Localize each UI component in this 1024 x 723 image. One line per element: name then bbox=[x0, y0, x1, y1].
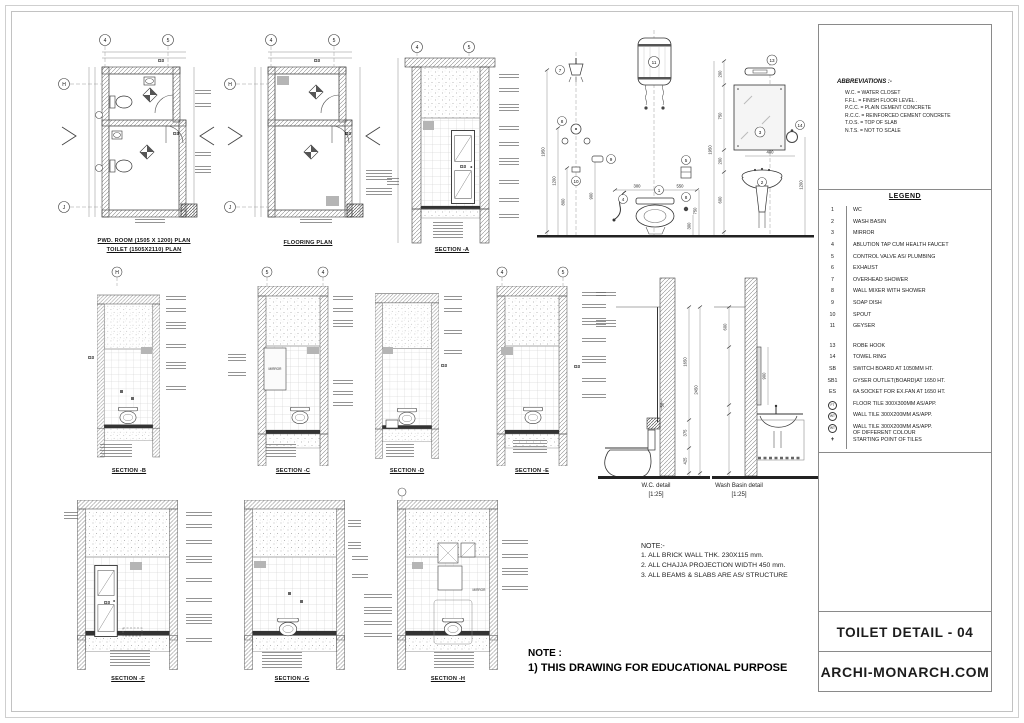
legend-item: +STARTING POINT OF TILES bbox=[819, 436, 991, 448]
caption-section-d: SECTION -D bbox=[390, 468, 424, 474]
grid-bubble-5: 5 bbox=[333, 38, 336, 44]
grid-bubble-h: H bbox=[62, 82, 66, 88]
legend-label: SPOUT bbox=[846, 310, 871, 317]
abbreviation-item: T.O.S. = TOP OF SLAB bbox=[845, 120, 951, 128]
abbreviation-item: P.C.C. = PLAIN CEMENT CONCRETE bbox=[845, 105, 951, 113]
annotation-note bbox=[135, 219, 165, 225]
wash-basin-detail: 900 600 bbox=[712, 278, 820, 479]
annotation-note bbox=[499, 158, 519, 167]
annotation-note bbox=[582, 338, 606, 344]
caption-section-a: SECTION -A bbox=[435, 247, 469, 253]
annotation-note bbox=[166, 296, 186, 302]
wc-detail: 1650 2450 375 425 50 bbox=[598, 278, 710, 479]
legend-item: 11GEYSER bbox=[819, 322, 991, 334]
legend-label: 6A SOCKET FOR EX.FAN AT 1650 HT. bbox=[846, 388, 945, 395]
annotation-note bbox=[499, 180, 519, 186]
dim-label: 200 bbox=[718, 70, 723, 78]
legend-key: 4 bbox=[819, 241, 846, 248]
legend-key: 7 bbox=[819, 276, 846, 283]
legend-label: MIRROR bbox=[846, 229, 874, 236]
legend-label: GEYSER bbox=[846, 322, 875, 329]
wall-tile-alt-symbol-icon: WT bbox=[819, 423, 846, 433]
legend-key: SB1 bbox=[819, 376, 846, 383]
legend-key: 10 bbox=[819, 310, 846, 317]
grid-bubble-5: 5 bbox=[468, 45, 471, 51]
annotation-note bbox=[434, 652, 474, 668]
grid-bubble-h: H bbox=[228, 82, 232, 88]
section-b: H D3 bbox=[88, 267, 160, 457]
annotation-note bbox=[444, 308, 462, 314]
annotation-note bbox=[582, 394, 606, 400]
legend-item: 13ROBE HOOK bbox=[819, 342, 991, 354]
grid-bubble-5: 5 bbox=[562, 270, 565, 276]
legend-key: 14 bbox=[819, 353, 846, 360]
annotation-note bbox=[348, 520, 361, 529]
legend-label: FLOOR TILE 300X300MM AS/APP. bbox=[846, 400, 936, 407]
dim-label: 300 bbox=[687, 222, 692, 230]
legend-label: ROBE HOOK bbox=[846, 342, 885, 349]
annotation-note bbox=[352, 574, 368, 580]
annotation-note bbox=[386, 444, 414, 459]
dim-label: 50 bbox=[660, 402, 665, 407]
annotation-note bbox=[582, 304, 606, 310]
annotation-note bbox=[499, 142, 519, 148]
caption-section-b: SECTION -B bbox=[112, 468, 146, 474]
legend-label: SWITCH BOARD AT 1050MM HT. bbox=[846, 365, 933, 372]
grid-bubble-4: 4 bbox=[501, 270, 504, 276]
annotation-note bbox=[333, 308, 353, 314]
caption-wc-detail: W.C. detail bbox=[641, 483, 670, 489]
annotation-note bbox=[499, 126, 519, 132]
dim-label: 750 bbox=[718, 112, 723, 120]
caption-plan1-line1: PWD. ROOM (1505 X 1200) PLAN bbox=[98, 238, 191, 244]
door-tag: D3 bbox=[314, 58, 320, 63]
grid-bubble-4: 4 bbox=[322, 270, 325, 276]
annotation-note bbox=[186, 512, 212, 518]
legend-tag-11: 11 bbox=[652, 60, 657, 65]
annotation-note bbox=[186, 540, 212, 546]
annotation-note bbox=[352, 556, 368, 562]
door-tag: D3 bbox=[88, 355, 94, 360]
section-e: 4 5 D3 bbox=[497, 267, 580, 466]
note-item: 2. ALL CHAJJA PROJECTION WIDTH 450 mm. bbox=[641, 561, 816, 571]
legend-item: FTFLOOR TILE 300X300MM AS/APP. bbox=[819, 400, 991, 412]
caption-flooring-plan: FLOORING PLAN bbox=[284, 240, 333, 246]
section-h: MIRROR bbox=[398, 488, 498, 670]
dim-label: 375 bbox=[683, 429, 688, 437]
legend-tag-13: 13 bbox=[769, 58, 775, 63]
dim-label: 300 bbox=[634, 184, 642, 189]
annotation-note bbox=[499, 104, 519, 113]
legend-key: 3 bbox=[819, 229, 846, 236]
legend-key: 5 bbox=[819, 252, 846, 259]
annotation-note bbox=[502, 554, 528, 560]
section-c: MIRROR 5 4 bbox=[258, 267, 328, 466]
legend-item: 8WALL MIXER WITH SHOWER bbox=[819, 287, 991, 299]
note-item: 1. ALL BRICK WALL THK. 230X115 mm. bbox=[641, 551, 816, 561]
section-g bbox=[245, 500, 345, 670]
dim-label: 600 bbox=[723, 323, 728, 331]
annotation-note bbox=[582, 378, 606, 384]
caption-wc-detail-scale: [1:25] bbox=[648, 492, 663, 498]
annotation-note bbox=[186, 598, 212, 604]
legend-label: ABLUTION TAP CUM HEALTH FAUCET bbox=[846, 241, 949, 248]
annotation-note bbox=[100, 444, 132, 459]
legend-block: LEGEND 1WC 2WASH BASIN 3MIRROR 4ABLUTION… bbox=[819, 189, 991, 453]
dim-label: 1950 bbox=[708, 145, 713, 155]
legend-item: 4ABLUTION TAP CUM HEALTH FAUCET bbox=[819, 241, 991, 253]
annotation-note bbox=[499, 198, 519, 204]
annotation-note bbox=[502, 540, 528, 546]
legend-key: 8 bbox=[819, 287, 846, 294]
legend-item: WTWALL TILE 300X200MM AS/APP. bbox=[819, 411, 991, 423]
legend-tag-4: 4 bbox=[622, 197, 625, 202]
annotation-note bbox=[387, 178, 399, 187]
annotation-note bbox=[186, 638, 212, 644]
abbreviations-block: ABBREVIATIONS :- W.C. = WATER CLOSET F.F… bbox=[819, 25, 991, 189]
grid-bubble-4: 4 bbox=[416, 45, 419, 51]
section-f: D3 bbox=[78, 500, 178, 670]
annotation-note bbox=[195, 166, 211, 175]
annotation-note bbox=[228, 354, 246, 363]
annotation-note bbox=[110, 650, 150, 668]
legend-item: 6EXHAUST bbox=[819, 264, 991, 276]
legend-item: 2WASH BASIN bbox=[819, 218, 991, 230]
annotation-note bbox=[262, 652, 302, 668]
legend-label: STARTING POINT OF TILES bbox=[846, 436, 922, 443]
mirror-label: MIRROR bbox=[473, 588, 487, 592]
annotation-note bbox=[166, 362, 186, 371]
legend-label: TOWEL RING bbox=[846, 353, 886, 360]
legend-tag-1: 1 bbox=[658, 188, 661, 193]
annotation-note bbox=[364, 594, 392, 600]
legend-item: 1WC bbox=[819, 206, 991, 218]
legend-key: 6 bbox=[819, 264, 846, 271]
door-tag: D3 bbox=[173, 131, 179, 136]
dim-label: 1650 bbox=[683, 357, 688, 367]
dim-label: 1200 bbox=[799, 180, 804, 190]
caption-section-e: SECTION -E bbox=[515, 468, 549, 474]
annotation-note bbox=[444, 296, 462, 302]
annotation-note bbox=[499, 214, 519, 220]
grid-bubble-4: 4 bbox=[270, 38, 273, 44]
legend-label: GYSER OUTLET(BOARD)AT 1650 HT. bbox=[846, 376, 945, 383]
caption-section-h: SECTION -H bbox=[431, 676, 465, 682]
legend-item: 5CONTROL VALVE AS/ PLUMBING bbox=[819, 252, 991, 264]
annotation-note bbox=[186, 556, 212, 565]
annotation-note bbox=[364, 621, 392, 627]
sheet-title: TOILET DETAIL - 04 bbox=[819, 611, 991, 652]
annotation-note bbox=[596, 320, 616, 329]
floor-tile-symbol-icon: FT bbox=[819, 400, 846, 410]
dim-label: 2450 bbox=[694, 385, 699, 395]
door-tag: D3 bbox=[441, 363, 447, 368]
mirror-label: MIRROR bbox=[269, 367, 283, 371]
legend-item: 9SOAP DISH bbox=[819, 299, 991, 311]
section-d: D3 bbox=[375, 294, 447, 459]
dim-label: 800 bbox=[561, 198, 566, 206]
grid-bubble-5: 5 bbox=[167, 38, 170, 44]
annotation-note bbox=[300, 219, 332, 225]
annotation-note bbox=[333, 380, 353, 386]
annotation-note bbox=[364, 633, 392, 639]
legend-key: ES bbox=[819, 388, 846, 395]
annotation-note bbox=[444, 330, 462, 336]
annotation-note bbox=[499, 88, 519, 94]
legend-gap bbox=[819, 334, 991, 342]
caption-section-c: SECTION -C bbox=[276, 468, 310, 474]
dim-label: 900 bbox=[762, 372, 767, 380]
annotation-note bbox=[366, 188, 392, 197]
annotation-note bbox=[166, 344, 186, 350]
annotation-note bbox=[186, 578, 212, 584]
legend-item: ES6A SOCKET FOR EX.FAN AT 1650 HT. bbox=[819, 388, 991, 400]
annotation-note bbox=[166, 322, 186, 331]
door-tag: D3 bbox=[460, 164, 466, 169]
sheet-website: ARCHI-MONARCH.COM bbox=[819, 651, 991, 692]
footer-note-line: 1) THIS DRAWING FOR EDUCATIONAL PURPOSE bbox=[528, 662, 808, 674]
legend-tag-8: 8 bbox=[561, 119, 564, 124]
legend-tag-14: 14 bbox=[797, 123, 803, 128]
caption-section-f: SECTION -F bbox=[111, 676, 145, 682]
legend-item: WTWALL TILE 300X200MM AS/APP.OF DIFFEREN… bbox=[819, 423, 991, 437]
legend-label: WALL MIXER WITH SHOWER bbox=[846, 287, 926, 294]
legend-key: 1 bbox=[819, 206, 846, 213]
starting-point-icon: + bbox=[819, 436, 846, 443]
wall-tile-symbol-icon: WT bbox=[819, 411, 846, 421]
legend-tag-9: 9 bbox=[610, 157, 613, 162]
legend-tag-5: 5 bbox=[685, 158, 688, 163]
legend-divider bbox=[846, 206, 847, 449]
legend-key: 13 bbox=[819, 342, 846, 349]
legend-label: WASH BASIN bbox=[846, 218, 886, 225]
legend-tag-7: 7 bbox=[559, 68, 562, 73]
dim-label: 750 bbox=[693, 207, 698, 215]
legend-item: SBSWITCH BOARD AT 1050MM HT. bbox=[819, 365, 991, 377]
fixture-installation-elevation: 1950 1200 800 900 7 8 9 10 bbox=[537, 30, 814, 238]
dim-label: 1200 bbox=[552, 176, 557, 186]
annotation-note bbox=[348, 542, 361, 551]
abbreviation-item: R.C.C. = REINFORCED CEMENT CONCRETE bbox=[845, 113, 951, 121]
footer-note-heading: NOTE : bbox=[528, 648, 808, 659]
legend-key: 2 bbox=[819, 218, 846, 225]
legend-label: CONTROL VALVE AS/ PLUMBING bbox=[846, 252, 935, 259]
abbreviation-item: N.T.S. = NOT TO SCALE bbox=[845, 128, 951, 136]
plan-flooring: 4 5 H J D3 D3 bbox=[225, 35, 381, 218]
legend-item: 7OVERHEAD SHOWER bbox=[819, 276, 991, 288]
annotation-note bbox=[64, 512, 78, 521]
abbreviation-item: W.C. = WATER CLOSET bbox=[845, 90, 951, 98]
legend-item: 10SPOUT bbox=[819, 310, 991, 322]
caption-plan1-line2: TOILET (1505X2110) PLAN bbox=[107, 247, 182, 253]
legend-label: SOAP DISH bbox=[846, 299, 882, 306]
annotation-note bbox=[166, 308, 186, 314]
legend-item: 14TOWEL RING bbox=[819, 353, 991, 365]
annotation-note bbox=[499, 74, 519, 80]
annotation-note bbox=[266, 444, 296, 459]
dim-label: 550 bbox=[677, 184, 685, 189]
grid-bubble-h: H bbox=[115, 270, 119, 276]
grid-bubble-5: 5 bbox=[266, 270, 269, 276]
door-tag: D3 bbox=[574, 364, 580, 369]
title-block-panel: ABBREVIATIONS :- W.C. = WATER CLOSET F.F… bbox=[818, 24, 992, 692]
annotation-note bbox=[444, 350, 462, 356]
dim-label: 900 bbox=[589, 192, 594, 200]
grid-bubble-4: 4 bbox=[104, 38, 107, 44]
legend-tag-3: 3 bbox=[759, 130, 762, 135]
legend-item: SB1GYSER OUTLET(BOARD)AT 1650 HT. bbox=[819, 376, 991, 388]
legend-label: OVERHEAD SHOWER bbox=[846, 276, 908, 283]
annotation-note bbox=[195, 90, 211, 96]
legend-tag-8: 8 bbox=[685, 195, 688, 200]
legend-heading: LEGEND bbox=[819, 190, 991, 206]
annotation-note bbox=[333, 391, 353, 397]
dim-label: 1950 bbox=[541, 147, 546, 157]
dim-label: 400 bbox=[767, 150, 775, 155]
annotation-note bbox=[228, 372, 246, 378]
annotation-note bbox=[502, 586, 528, 592]
caption-section-g: SECTION -G bbox=[275, 676, 310, 682]
legend-key: SB bbox=[819, 365, 846, 372]
dim-label: 200 bbox=[718, 157, 723, 165]
annotation-note bbox=[582, 356, 606, 365]
annotation-note bbox=[195, 103, 211, 109]
section-a: 4 5 D3 bbox=[398, 42, 495, 244]
drawing-sheet: 4 5 H J D3 D3 bbox=[0, 0, 1024, 723]
legend-label: WC bbox=[846, 206, 862, 213]
annotation-note bbox=[166, 386, 186, 392]
legend-key: 11 bbox=[819, 322, 846, 329]
annotation-note bbox=[333, 402, 353, 407]
annotation-note bbox=[596, 292, 616, 298]
caption-basin-detail-scale: [1:25] bbox=[731, 492, 746, 498]
annotation-note bbox=[502, 568, 528, 577]
door-tag: D3 bbox=[158, 58, 164, 63]
caption-basin-detail: Wash Basin detail bbox=[715, 483, 763, 489]
legend-label: WALL TILE 300X200MM AS/APP. bbox=[846, 411, 932, 418]
legend-tag-10: 10 bbox=[573, 179, 579, 184]
annotation-note bbox=[364, 607, 392, 616]
annotation-note bbox=[513, 440, 547, 454]
footer-note-block: NOTE : 1) THIS DRAWING FOR EDUCATIONAL P… bbox=[528, 648, 808, 674]
abbreviations-heading: ABBREVIATIONS :- bbox=[837, 79, 892, 85]
dim-label: 425 bbox=[683, 457, 688, 465]
annotation-note bbox=[433, 222, 463, 238]
annotation-note bbox=[186, 524, 212, 530]
legend-label: EXHAUST bbox=[846, 264, 878, 271]
door-tag: D3 bbox=[104, 600, 110, 605]
annotation-note bbox=[195, 152, 211, 158]
legend-item: 3MIRROR bbox=[819, 229, 991, 241]
annotation-note bbox=[333, 320, 353, 329]
notes-block: NOTE:- 1. ALL BRICK WALL THK. 230X115 mm… bbox=[641, 543, 816, 581]
abbreviation-item: F.F.L. = FINISH FLOOR LEVEL . bbox=[845, 98, 951, 106]
notes-heading: NOTE:- bbox=[641, 543, 816, 550]
annotation-note bbox=[186, 614, 212, 624]
legend-label: WALL TILE 300X200MM AS/APP.OF DIFFERENT … bbox=[846, 423, 932, 437]
annotation-note bbox=[333, 296, 353, 302]
plan-pwd-room-toilet: 4 5 H J D3 D3 bbox=[59, 35, 215, 218]
legend-tag-2: 2 bbox=[761, 180, 764, 185]
note-item: 3. ALL BEAMS & SLABS ARE AS/ STRUCTURE bbox=[641, 571, 816, 581]
dim-label: 600 bbox=[718, 196, 723, 204]
door-tag: D3 bbox=[345, 131, 351, 136]
legend-key: 9 bbox=[819, 299, 846, 306]
